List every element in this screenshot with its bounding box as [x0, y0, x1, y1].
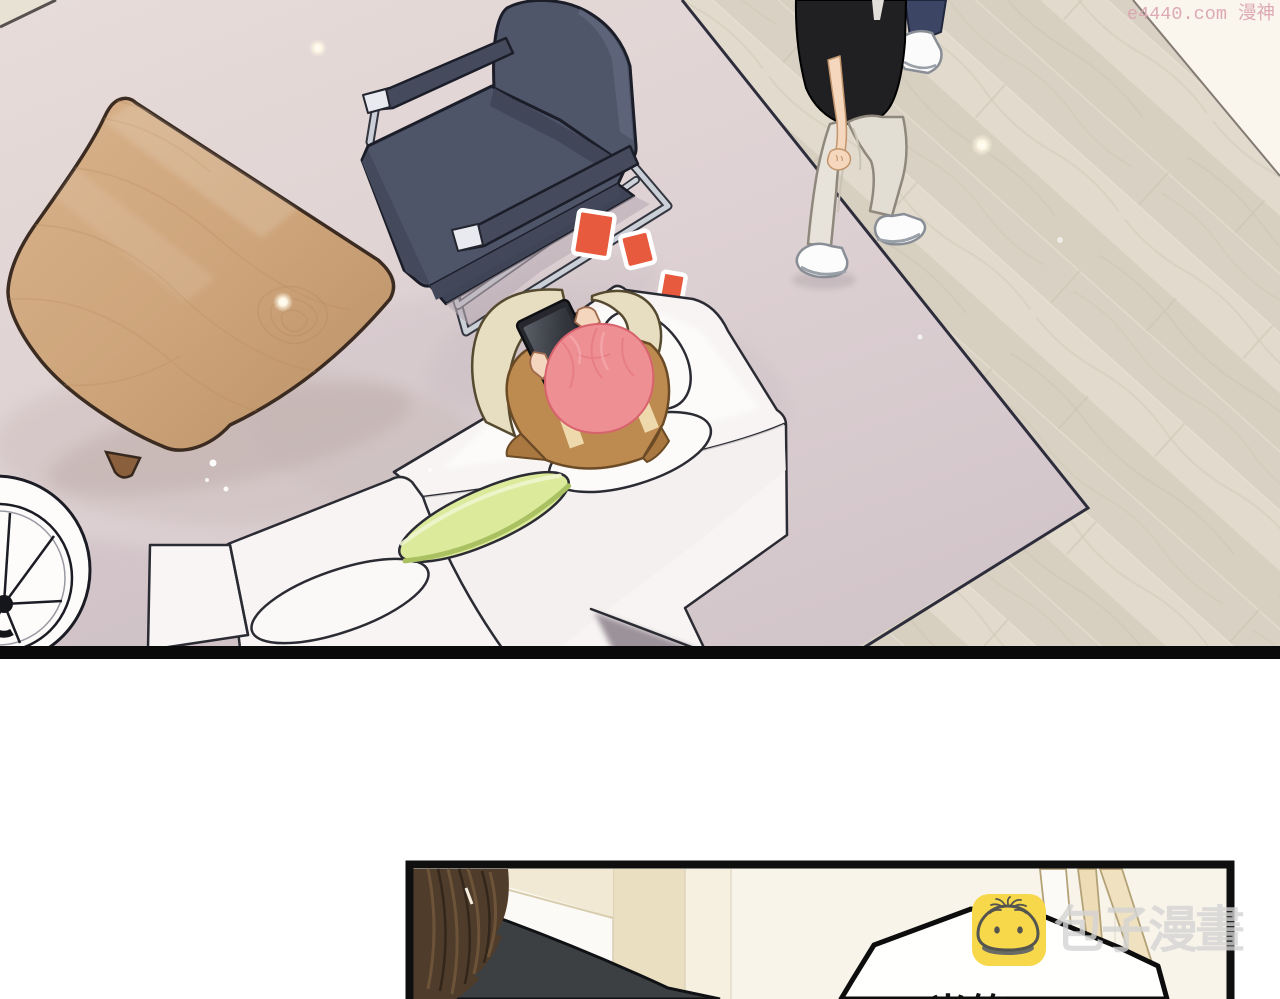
- svg-text:包子漫畫: 包子漫畫: [1054, 902, 1244, 958]
- svg-text:e4440.com 漫神: e4440.com 漫神: [1127, 3, 1275, 25]
- svg-text:当笑: 当笑: [929, 993, 1011, 999]
